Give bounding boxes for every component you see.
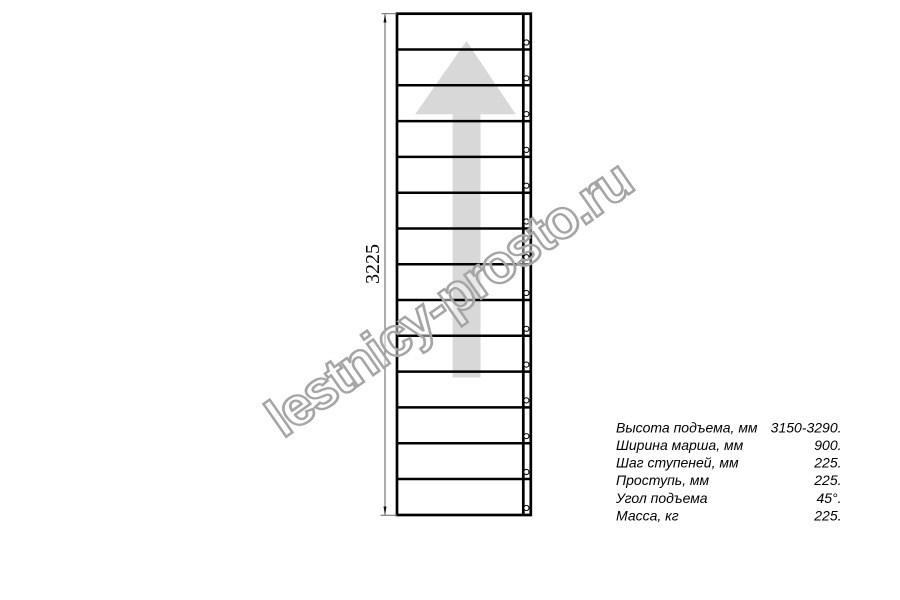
svg-text:225.: 225.	[813, 472, 841, 488]
svg-text:3225: 3225	[362, 244, 384, 284]
svg-text:225.: 225.	[813, 507, 841, 523]
svg-text:Угол подъема: Угол подъема	[615, 490, 708, 506]
svg-text:225.: 225.	[813, 455, 841, 471]
svg-text:Проступь, мм: Проступь, мм	[616, 472, 710, 488]
svg-text:3150-3290.: 3150-3290.	[771, 420, 842, 436]
svg-text:Шаг ступеней, мм: Шаг ступеней, мм	[616, 455, 739, 471]
svg-text:Ширина марша, мм: Ширина марша, мм	[616, 437, 744, 453]
svg-text:Высота подъема, мм: Высота подъема, мм	[616, 420, 758, 436]
svg-text:45°.: 45°.	[816, 490, 841, 506]
svg-text:900.: 900.	[814, 437, 841, 453]
svg-text:Масса, кг: Масса, кг	[616, 507, 679, 523]
